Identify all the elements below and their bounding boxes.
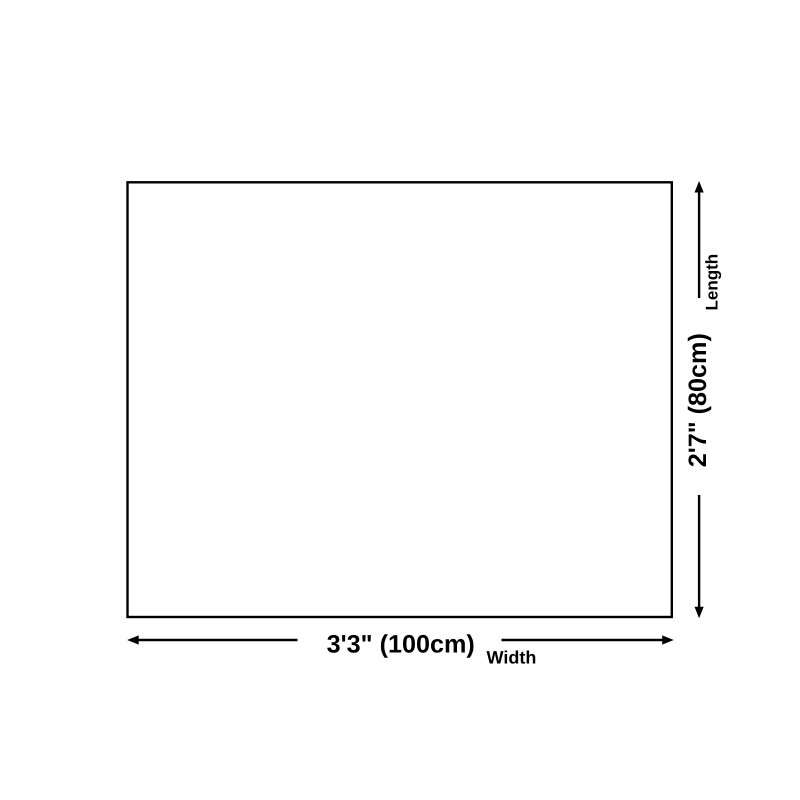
- svg-text:3'3" (100cm): 3'3" (100cm): [327, 631, 475, 659]
- svg-text:Width: Width: [487, 647, 537, 667]
- svg-text:2'7" (80cm): 2'7" (80cm): [684, 333, 712, 467]
- svg-text:Length: Length: [702, 254, 721, 311]
